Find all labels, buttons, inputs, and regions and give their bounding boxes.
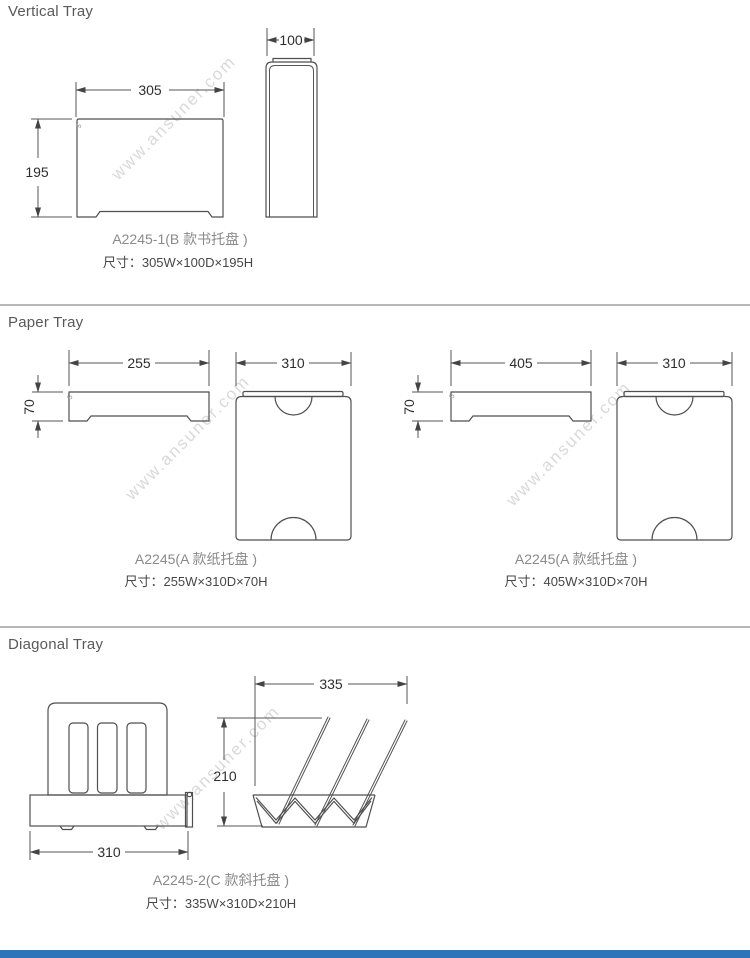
paper-tray-large-top-view: 310 <box>617 352 732 540</box>
dim-top-depth: 310 <box>281 355 305 371</box>
dim-top-depth: 310 <box>662 355 686 371</box>
footer-accent-bar <box>0 950 750 958</box>
dim-front-height: 70 <box>21 399 37 415</box>
paper-tray-small-top-view: 310 <box>236 352 351 540</box>
model-label-diagonal: A2245-2(C 款斜托盘 ) <box>153 870 289 890</box>
dim-side-depth: 100 <box>279 32 303 48</box>
dim-front-height: 195 <box>25 164 49 180</box>
paper-tray-small-front-view: 5 255 70 <box>21 350 209 438</box>
dim-front-width: 305 <box>138 82 162 98</box>
dim-front-width: 405 <box>509 355 533 371</box>
corner-radius-note: 5 <box>67 394 75 401</box>
vertical-tray-side-view: 100 <box>266 28 317 217</box>
vertical-tray-front-view: 5 305 195 <box>25 82 224 217</box>
size-label-paper-large: 尺寸：405W×310D×70H <box>504 571 647 590</box>
model-label-paper-small: A2245(A 款纸托盘 ) <box>135 549 257 569</box>
size-label-paper-small: 尺寸：255W×310D×70H <box>124 571 267 590</box>
corner-radius-note: 5 <box>449 393 457 400</box>
diagonal-tray-front-view: 310 <box>30 703 193 860</box>
size-label-vertical: 尺寸：305W×100D×195H <box>103 252 253 271</box>
spec-sheet: www.ansuner.com www.ansuner.com www.ansu… <box>0 0 750 958</box>
model-label-vertical: A2245-1(B 款书托盘 ) <box>112 229 247 249</box>
dim-front-width: 255 <box>127 355 151 371</box>
dim-side-height: 210 <box>213 768 237 784</box>
diagonal-tray-side-view: 335 210 <box>213 676 407 827</box>
dim-front-height: 70 <box>401 399 417 415</box>
paper-tray-large-front-view: 5 405 70 <box>401 350 591 438</box>
technical-drawings-canvas: 5 305 195 100 5 <box>0 0 750 958</box>
dim-side-width: 335 <box>319 676 343 692</box>
model-label-paper-large: A2245(A 款纸托盘 ) <box>515 549 637 569</box>
size-label-diagonal: 尺寸：335W×310D×210H <box>146 893 296 912</box>
dim-front-width: 310 <box>97 844 121 860</box>
